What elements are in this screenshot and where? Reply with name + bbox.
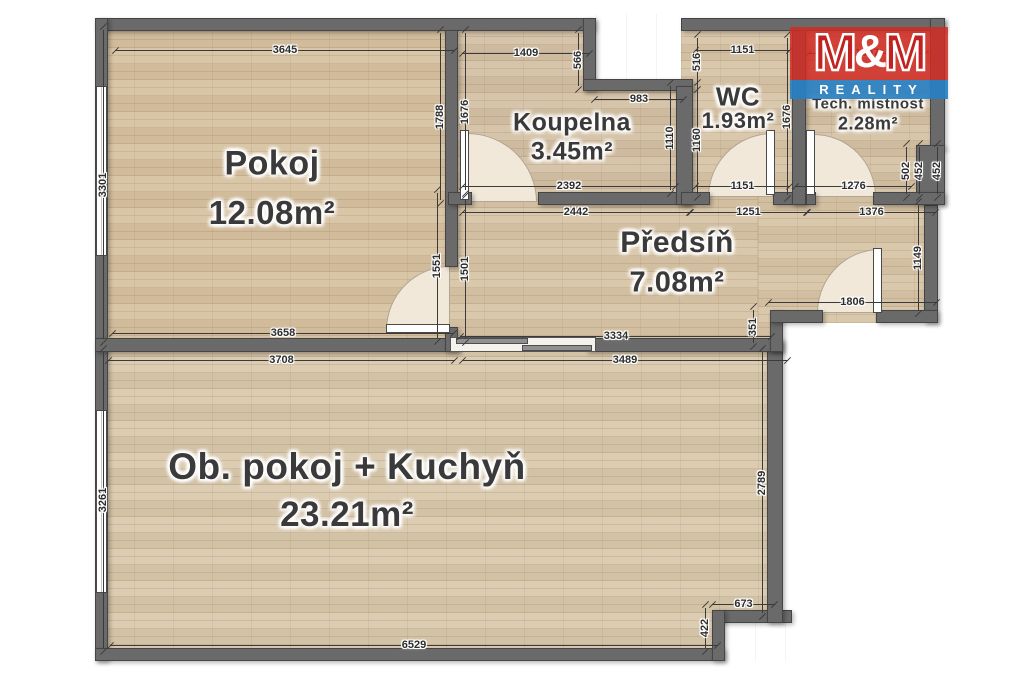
dimension-label: 673	[734, 598, 752, 610]
wall	[876, 310, 938, 323]
dimension-label: 3645	[273, 44, 297, 56]
wall	[924, 205, 938, 323]
dimension-label: 1676	[459, 99, 471, 123]
dimension-label: 983	[630, 93, 648, 105]
dimension-label: 1788	[434, 104, 446, 128]
sliding-door-panel	[522, 345, 592, 351]
dimension-label: 452	[931, 161, 943, 179]
door-leaf-pokoj	[386, 324, 450, 333]
room-area-obpokoj: 23.21m²	[280, 495, 414, 535]
dimension-label: 1501	[459, 257, 471, 281]
dimension-label: 1151	[731, 44, 755, 56]
wall	[712, 610, 725, 661]
dimension-label: 1151	[731, 180, 755, 192]
wall	[767, 340, 783, 623]
room-label-pokoj: Pokoj	[224, 145, 319, 184]
room-area-tech: 2.28m²	[838, 114, 898, 135]
room-label-koupelna: Koupelna	[513, 109, 631, 138]
dimension-label: 3261	[97, 488, 109, 512]
dimension-label: 3334	[604, 330, 628, 342]
dimension-label: 3708	[269, 354, 293, 366]
dimension-label: 1676	[781, 104, 793, 128]
dimension-label: 1376	[859, 206, 883, 218]
dimension-label: 1110	[664, 126, 676, 149]
dimension-label: 3489	[613, 354, 637, 366]
dimension-label: 3301	[97, 172, 109, 196]
room-area-wc: 1.93m²	[702, 108, 775, 134]
wall	[538, 192, 690, 205]
room-label-predsin: Předsíň	[620, 226, 734, 260]
dimension-label: 1551	[431, 253, 443, 277]
dimension-label: 3658	[271, 327, 295, 339]
agency-logo: M&M REALITY	[790, 27, 948, 99]
exterior-notch-bottom-right	[725, 623, 790, 661]
logo-red-band: M&M	[790, 27, 948, 80]
room-area-pokoj: 12.08m²	[209, 194, 335, 232]
room-floor-obpokoj	[95, 338, 783, 661]
logo-ampersand: &	[854, 25, 884, 77]
wall	[445, 30, 458, 267]
room-area-predsin: 7.08m²	[630, 267, 725, 300]
wall	[95, 338, 460, 352]
dimension-label: 452	[913, 161, 925, 179]
dimension-label: 351	[747, 317, 759, 335]
dimension-label: 422	[699, 619, 711, 637]
dimension-label: 6529	[402, 639, 426, 651]
dimension-label: 2789	[756, 470, 768, 494]
dimension-label: 1251	[736, 206, 760, 218]
dimension-label: 1276	[841, 180, 865, 192]
dimension-label: 502	[900, 161, 912, 179]
dimension-label: 1149	[912, 246, 924, 270]
dimension-label: 1806	[840, 296, 864, 308]
logo-mm-text: M&M	[814, 28, 925, 79]
room-floor-predsin	[445, 192, 783, 352]
window	[96, 86, 107, 256]
dimension-label: 1409	[514, 47, 538, 59]
dimension-label: 566	[572, 50, 584, 68]
dimension-label: 2442	[564, 206, 588, 218]
logo-reality-band: REALITY	[790, 80, 948, 99]
door-leaf-entrance	[873, 248, 882, 313]
floor-plan: 3645140998311511397239211511276244212511…	[0, 0, 1024, 683]
wall	[770, 310, 823, 323]
room-label-obpokoj: Ob. pokoj + Kuchyň	[168, 446, 525, 488]
exterior-notch-top	[596, 14, 681, 81]
dimension-label: 2392	[557, 180, 581, 192]
wall	[95, 18, 595, 31]
room-area-koupelna: 3.45m²	[531, 138, 613, 167]
dimension-label: 516	[691, 53, 703, 71]
